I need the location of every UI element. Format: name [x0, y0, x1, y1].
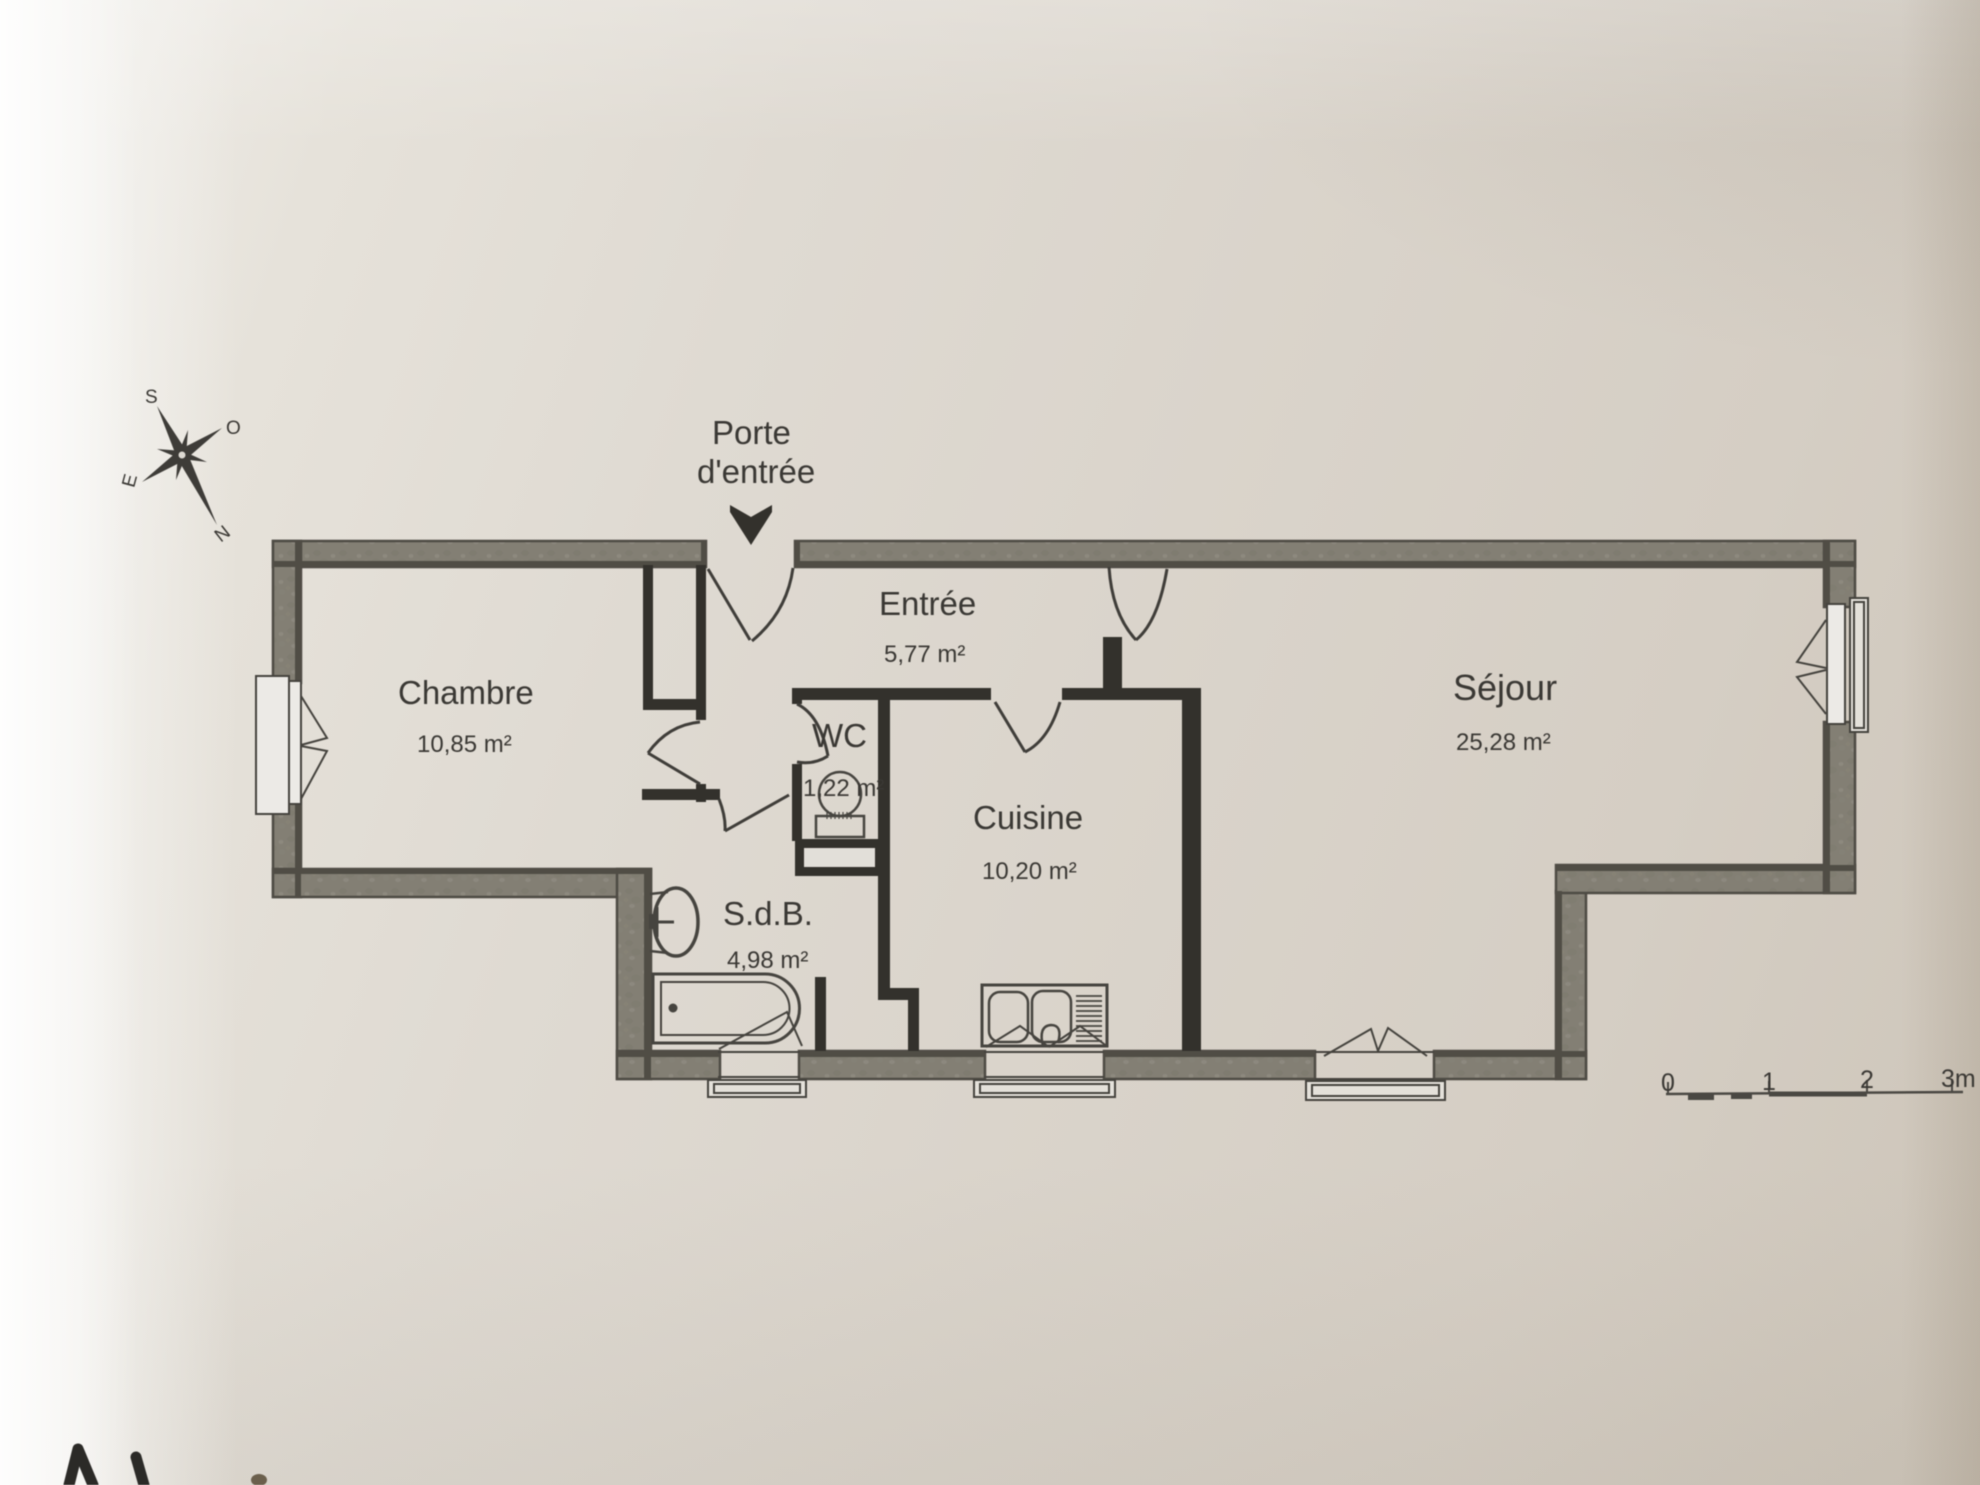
svg-text:WC: WC — [812, 717, 867, 754]
svg-text:2: 2 — [1860, 1066, 1874, 1094]
svg-text:10,20 m²: 10,20 m² — [982, 858, 1077, 885]
svg-text:Entrée: Entrée — [879, 585, 976, 622]
svg-text:E: E — [119, 472, 143, 490]
svg-text:4,98 m²: 4,98 m² — [727, 947, 808, 974]
svg-text:Porte: Porte — [712, 414, 791, 451]
svg-text:5,77 m²: 5,77 m² — [884, 641, 965, 668]
svg-text:1: 1 — [1762, 1068, 1776, 1096]
svg-text:d'entrée: d'entrée — [697, 453, 815, 490]
svg-text:3m: 3m — [1941, 1065, 1976, 1093]
svg-text:1,22 m²: 1,22 m² — [803, 775, 884, 802]
svg-text:Cuisine: Cuisine — [973, 799, 1083, 836]
svg-text:N: N — [211, 522, 235, 547]
svg-text:25,28 m²: 25,28 m² — [1456, 729, 1551, 756]
svg-text:Séjour: Séjour — [1453, 667, 1557, 708]
svg-text:0: 0 — [1661, 1069, 1675, 1097]
svg-text:S.d.B.: S.d.B. — [723, 895, 813, 932]
svg-text:Chambre: Chambre — [398, 674, 534, 711]
svg-text:O: O — [226, 418, 241, 439]
svg-text:10,85 m²: 10,85 m² — [417, 731, 512, 758]
svg-text:S: S — [145, 387, 158, 408]
